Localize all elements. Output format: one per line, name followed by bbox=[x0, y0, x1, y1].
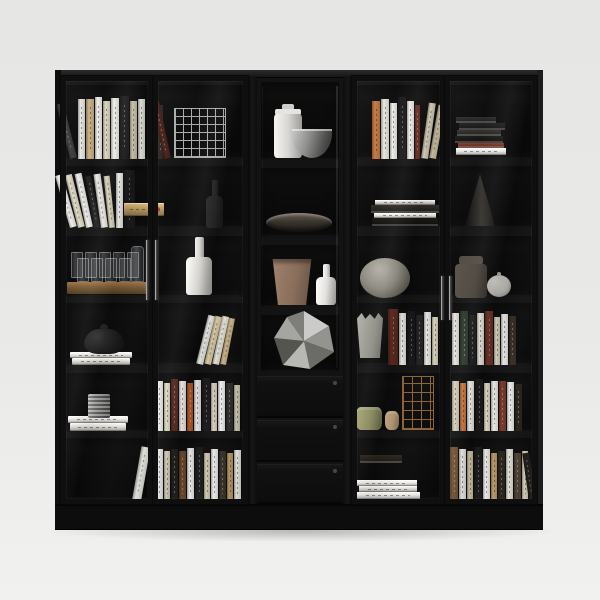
glass-reflection-streak bbox=[262, 86, 263, 286]
door-handle bbox=[146, 240, 149, 300]
drawer bbox=[257, 376, 343, 418]
bookcase-product-image bbox=[0, 0, 600, 600]
door-handle bbox=[449, 276, 452, 320]
glass-reflection-streak bbox=[336, 86, 338, 368]
cabinet-plinth bbox=[55, 504, 543, 530]
drawer-knob bbox=[333, 469, 337, 473]
drawer-knob bbox=[333, 381, 337, 385]
drawer bbox=[257, 464, 343, 504]
glass-door bbox=[352, 76, 445, 504]
glass-door bbox=[445, 76, 537, 504]
frame-pillar bbox=[343, 76, 352, 504]
glass-door bbox=[153, 76, 248, 504]
bottle-body bbox=[316, 277, 336, 305]
drawer bbox=[257, 420, 343, 462]
origami-sphere bbox=[272, 310, 336, 370]
drawer-knob bbox=[333, 425, 337, 429]
decor-dish bbox=[266, 213, 332, 232]
origami-sphere-svg bbox=[272, 310, 336, 370]
cabinet-side-right bbox=[537, 70, 543, 530]
door-handle bbox=[441, 276, 444, 320]
frame-pillar bbox=[248, 76, 257, 504]
decor-bottle bbox=[316, 264, 336, 305]
glass-door bbox=[61, 76, 153, 504]
door-handle bbox=[155, 240, 158, 300]
